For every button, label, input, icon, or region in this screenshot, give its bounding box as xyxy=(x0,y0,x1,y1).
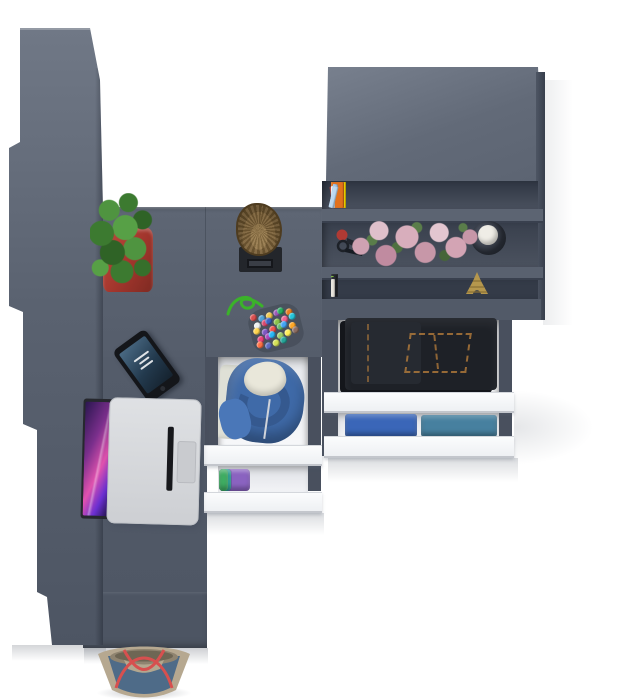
wardrobe-tower xyxy=(9,28,103,646)
laptop-spacebar xyxy=(166,427,174,491)
laptop xyxy=(80,396,201,527)
log-stool-seat xyxy=(236,203,282,256)
bead xyxy=(256,341,264,349)
tote-bag xyxy=(94,642,194,700)
bead xyxy=(276,307,284,315)
folded-jeans xyxy=(345,318,497,390)
bookshelf-bottom-band xyxy=(322,299,541,320)
wardrobe-side-edge xyxy=(95,68,103,646)
bead xyxy=(280,320,288,328)
blue-hoodie xyxy=(218,357,308,445)
denim-shirt xyxy=(421,415,497,437)
bead xyxy=(291,326,299,334)
desk-panel-seam xyxy=(205,207,206,357)
drawer-front xyxy=(204,492,322,513)
floor-shadow xyxy=(206,513,324,535)
bead xyxy=(252,327,260,335)
furniture-render-scene: 333333333 xyxy=(0,0,633,700)
jeans-pocket-stitching xyxy=(404,333,472,373)
rose-bouquet xyxy=(344,209,484,271)
drawer-front xyxy=(204,445,322,466)
drawer-front xyxy=(324,392,514,413)
laptop-trackpad xyxy=(176,441,196,483)
bookshelf-top-face xyxy=(326,67,544,181)
drawer-rail xyxy=(308,357,321,491)
laptop-keyboard xyxy=(115,407,168,514)
drawer-front xyxy=(324,436,514,458)
folded-clothes-stack xyxy=(219,468,309,492)
cactus-plant xyxy=(90,193,154,289)
laptop-body xyxy=(106,397,201,525)
floor-shadow xyxy=(328,458,518,482)
floor-shadow xyxy=(543,80,573,325)
bead xyxy=(279,336,287,344)
eiffel-tower-ornament xyxy=(455,271,499,297)
bead xyxy=(288,312,296,320)
books-row-top: 333333333 xyxy=(331,182,525,208)
jeans-seam-stitching xyxy=(359,324,369,382)
denim-shirt xyxy=(345,414,417,437)
bead xyxy=(264,317,272,325)
book-spine xyxy=(331,279,335,297)
bead xyxy=(268,330,276,338)
floor-shadow xyxy=(514,390,594,465)
drawer-rail xyxy=(205,357,218,447)
wardrobe-top-edge xyxy=(19,28,91,30)
books-row-bottom xyxy=(331,273,463,297)
clothes-pile xyxy=(219,469,228,491)
bead xyxy=(249,313,257,321)
